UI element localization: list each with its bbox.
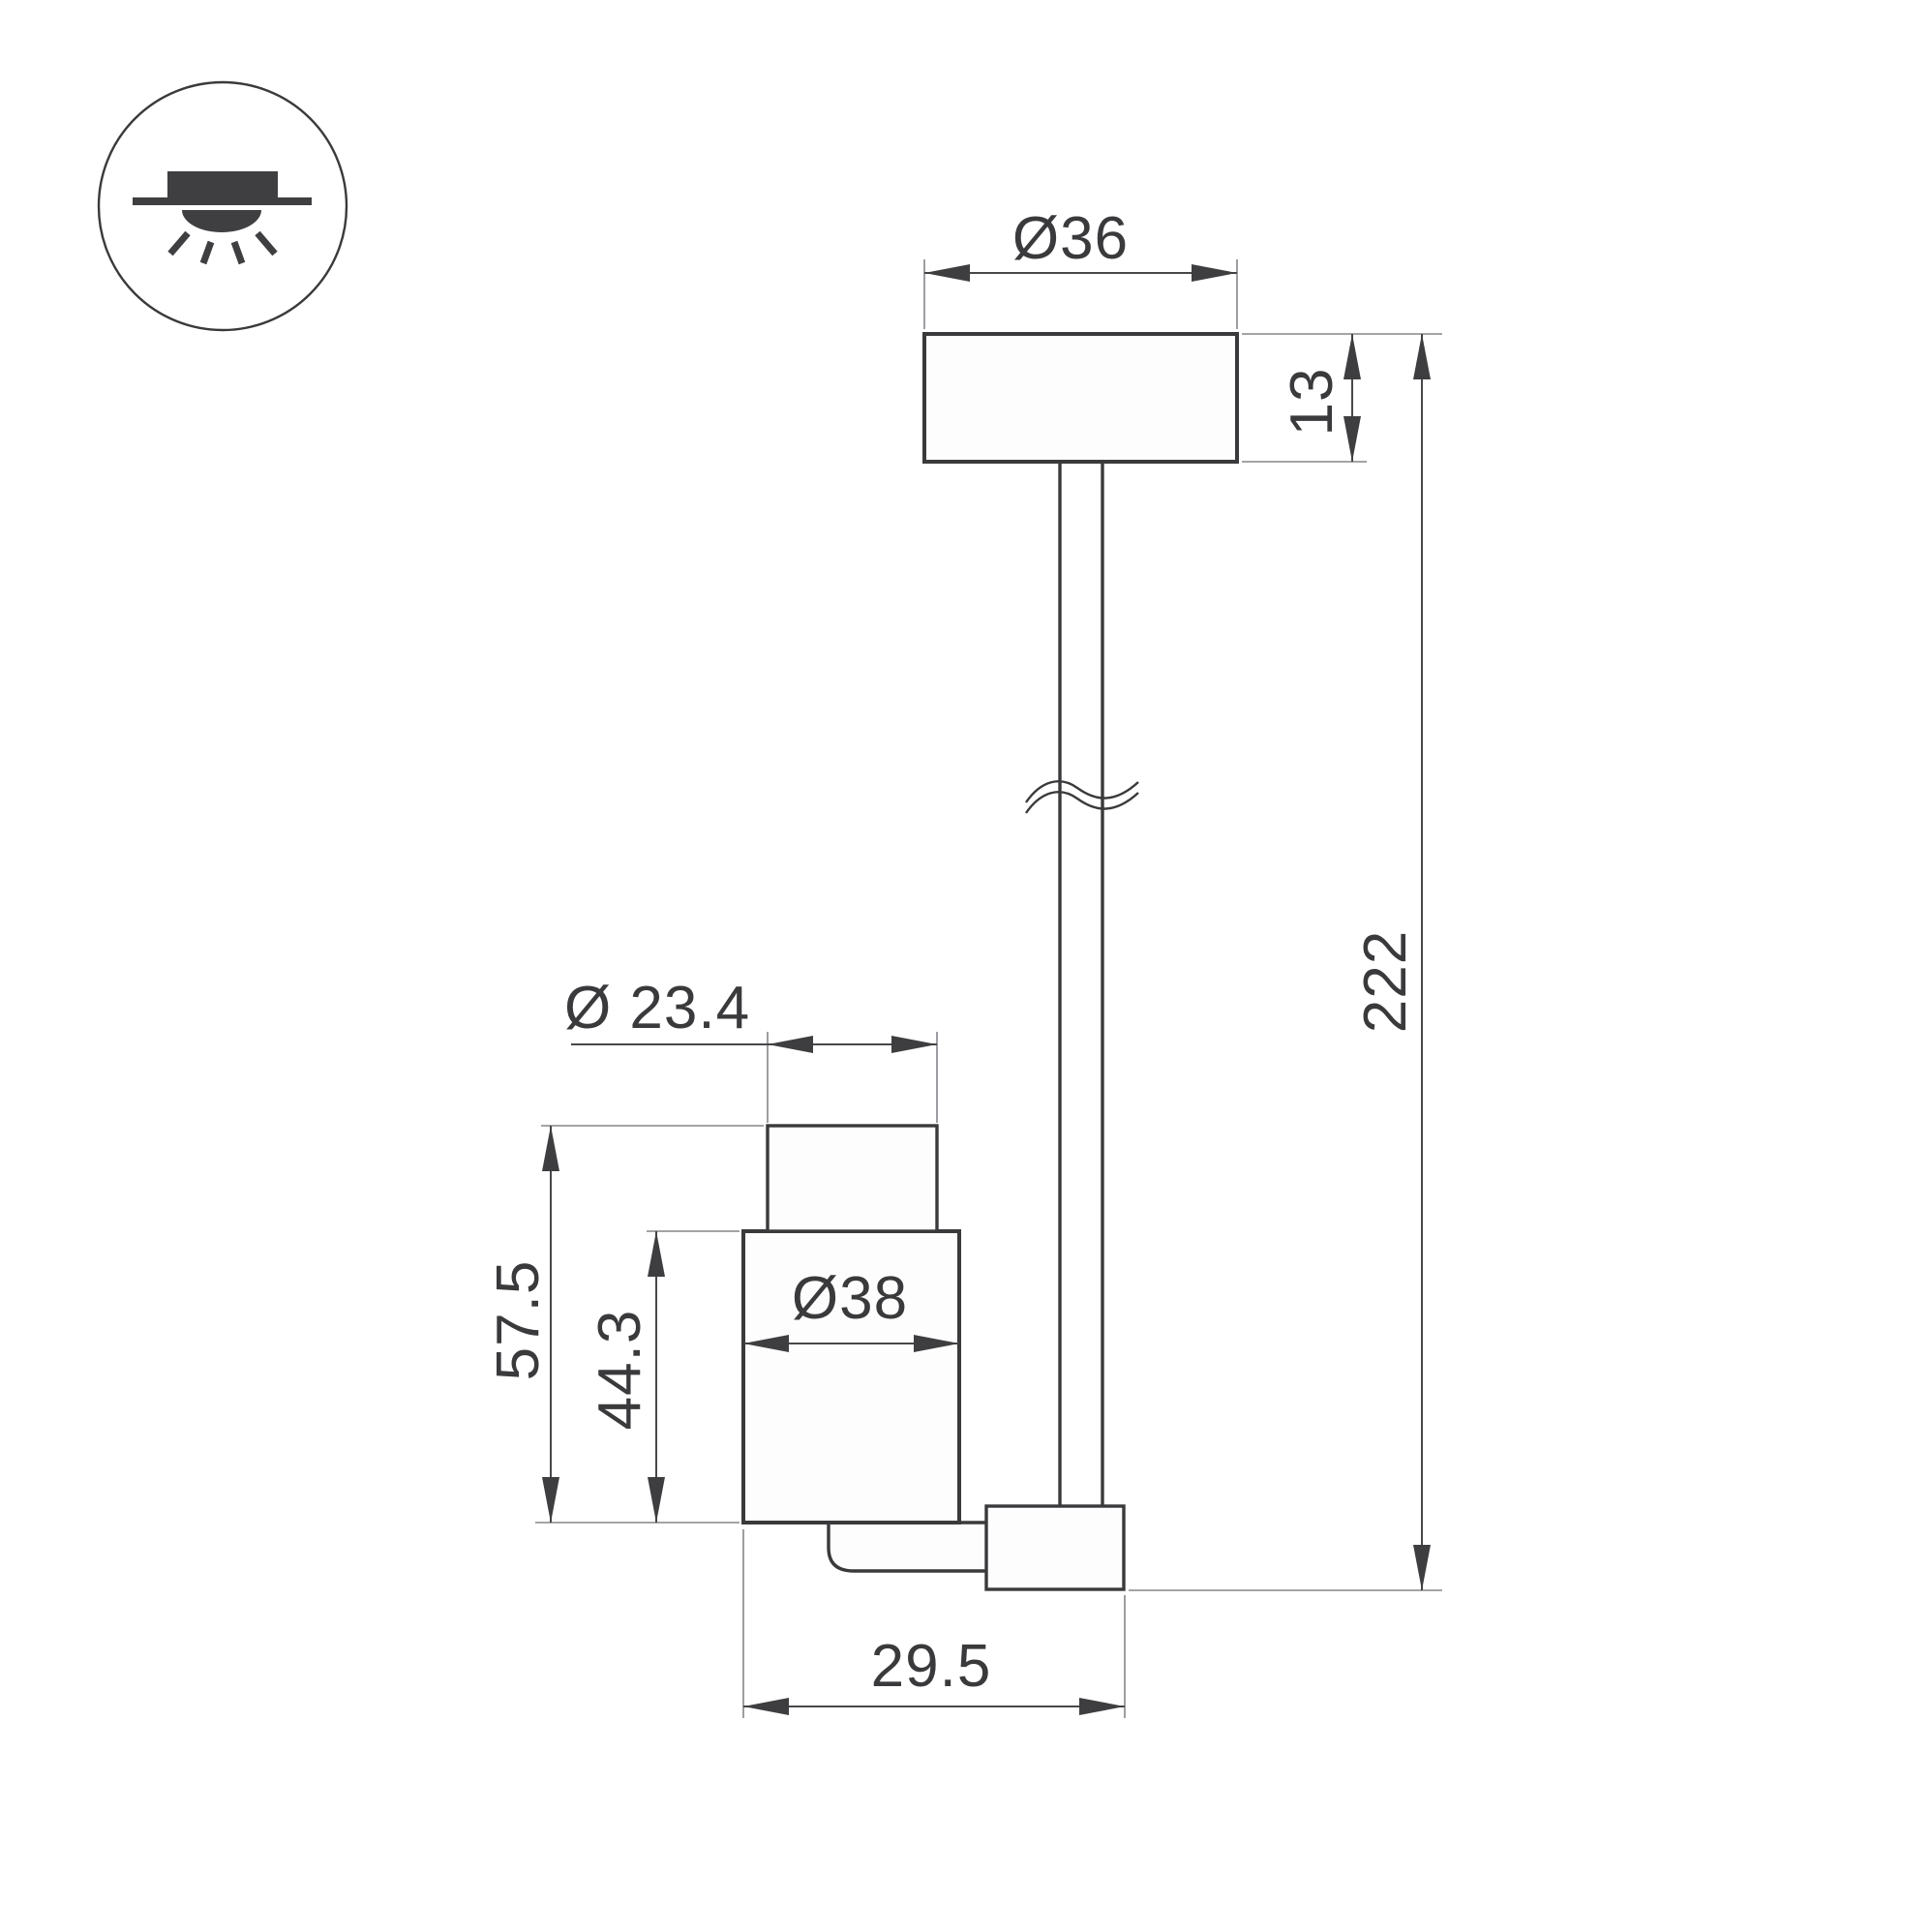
dim-label-head-depth: 29.5 — [871, 1633, 992, 1700]
arrowhead — [542, 1126, 559, 1171]
arrowhead — [542, 1477, 559, 1523]
dim-label-head-body-diameter: Ø38 — [792, 1265, 908, 1332]
break-symbol — [1026, 781, 1138, 813]
suspension-rod — [1026, 464, 1138, 1506]
arrowhead — [1413, 1545, 1431, 1590]
arrowhead — [924, 264, 970, 282]
dim-canopy-height: 13 — [1242, 334, 1442, 462]
dim-label-head-top-diameter: Ø 23.4 — [564, 975, 750, 1041]
arrowhead — [648, 1231, 665, 1277]
arrowhead — [1343, 334, 1361, 379]
spot-head-top-cylinder — [768, 1126, 937, 1231]
arrowhead — [1413, 334, 1431, 379]
dimension-drawing-canvas: Ø36 13 — [0, 0, 1932, 1932]
arrowhead — [891, 1036, 937, 1053]
mount-type-icon — [99, 82, 347, 330]
arrowhead — [1079, 1698, 1125, 1715]
drawing-page: Ø36 13 — [0, 0, 1932, 1932]
dim-label-canopy-height: 13 — [1279, 368, 1345, 437]
dim-label-canopy-diameter: Ø36 — [1012, 205, 1129, 272]
arrowhead — [1192, 264, 1237, 282]
canopy-group: Ø36 13 — [924, 205, 1442, 462]
dim-label-head-body-height: 44.3 — [587, 1310, 653, 1431]
arrowhead — [1343, 416, 1361, 462]
arrowhead — [648, 1477, 665, 1523]
ceiling-line-icon — [133, 197, 312, 205]
canopy — [924, 334, 1237, 462]
spot-head-group: Ø 23.4 57.5 44.3 — [485, 975, 1125, 1718]
elbow-connector-block — [986, 1506, 1124, 1589]
fixture-housing-icon — [167, 171, 278, 199]
dim-overall-height: 222 — [1129, 334, 1442, 1590]
dim-head-top-diameter: Ø 23.4 — [564, 975, 937, 1123]
dim-head-body-height: 44.3 — [587, 1231, 740, 1523]
arrowhead — [743, 1698, 789, 1715]
dim-canopy-diameter: Ø36 — [924, 205, 1237, 329]
icon-circle — [99, 82, 347, 330]
dim-label-head-total-height: 57.5 — [485, 1260, 552, 1381]
arrowhead — [768, 1036, 813, 1053]
dim-label-overall-height: 222 — [1352, 930, 1419, 1033]
elbow-arm — [829, 1523, 997, 1571]
